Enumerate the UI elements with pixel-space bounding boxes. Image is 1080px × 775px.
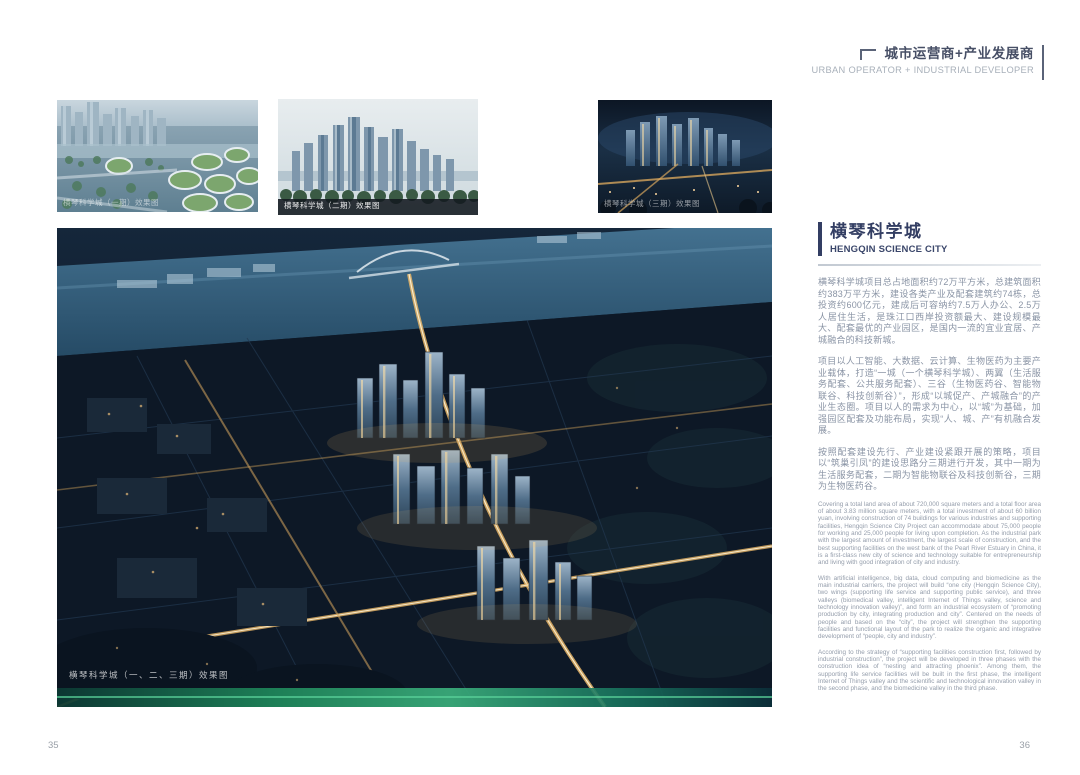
brochure-spread: 城市运营商+产业发展商 URBAN OPERATOR + INDUSTRIAL … (0, 0, 1080, 775)
thumbnail-phase3: 横琴科学城（三期）效果图 (598, 100, 772, 213)
main-photo-caption: 横琴科学城（一、二、三期）效果图 (69, 669, 229, 681)
page-header: 城市运营商+产业发展商 URBAN OPERATOR + INDUSTRIAL … (812, 42, 1034, 75)
header-divider (1042, 45, 1044, 80)
paragraph-en-3: According to the strategy of “supporting… (818, 649, 1041, 693)
main-aerial-photo: 横琴科学城（一、二、三期）效果图 (57, 228, 772, 707)
paragraph-cn-3: 按照配套建设先行、产业建设紧跟开展的策略，项目以“筑巢引凤”的建设思路分三期进行… (818, 447, 1041, 493)
thumbnail-phase1-image (57, 100, 258, 212)
thumbnail-phase2-image (278, 99, 478, 215)
main-aerial-image (57, 228, 772, 707)
page-number-left: 35 (48, 740, 59, 751)
thumbnail-phase3-caption: 横琴科学城（三期）效果图 (604, 198, 700, 209)
paragraph-en-1: Covering a total land area of about 720,… (818, 501, 1041, 567)
thumbnail-phase2: 横琴科学城（二期）效果图 (278, 99, 478, 215)
thumbnail-phase1: 横琴科学城（一期）效果图 (57, 100, 258, 212)
thumbnail-phase3-image (598, 100, 772, 213)
title-accent-bar (818, 222, 822, 256)
header-title-en: URBAN OPERATOR + INDUSTRIAL DEVELOPER (812, 65, 1034, 75)
article-title-en: HENGQIN SCIENCE CITY (830, 244, 948, 255)
page-number-right: 36 (1019, 740, 1030, 751)
header-row: 城市运营商+产业发展商 (812, 42, 1034, 62)
thumbnail-phase1-caption: 横琴科学城（一期）效果图 (63, 197, 159, 208)
paragraph-cn-1: 横琴科学城项目总占地面积约72万平方米，总建筑面积约383万平方米，建设各类产业… (818, 277, 1041, 346)
title-underline (818, 264, 1041, 266)
article-title-cn: 横琴科学城 (830, 222, 948, 241)
paragraph-cn-2: 项目以人工智能、大数据、云计算、生物医药为主要产业载体，打造“一城（一个横琴科学… (818, 356, 1041, 437)
corner-bracket-icon (860, 49, 876, 60)
article-column: 横琴科学城 HENGQIN SCIENCE CITY 横琴科学城项目总占地面积约… (818, 222, 1041, 693)
thumbnail-phase2-caption: 横琴科学城（二期）效果图 (284, 200, 380, 211)
paragraph-en-2: With artificial intelligence, big data, … (818, 575, 1041, 641)
header-title-cn: 城市运营商+产业发展商 (885, 42, 1034, 62)
article-title-block: 横琴科学城 HENGQIN SCIENCE CITY (818, 222, 1041, 256)
